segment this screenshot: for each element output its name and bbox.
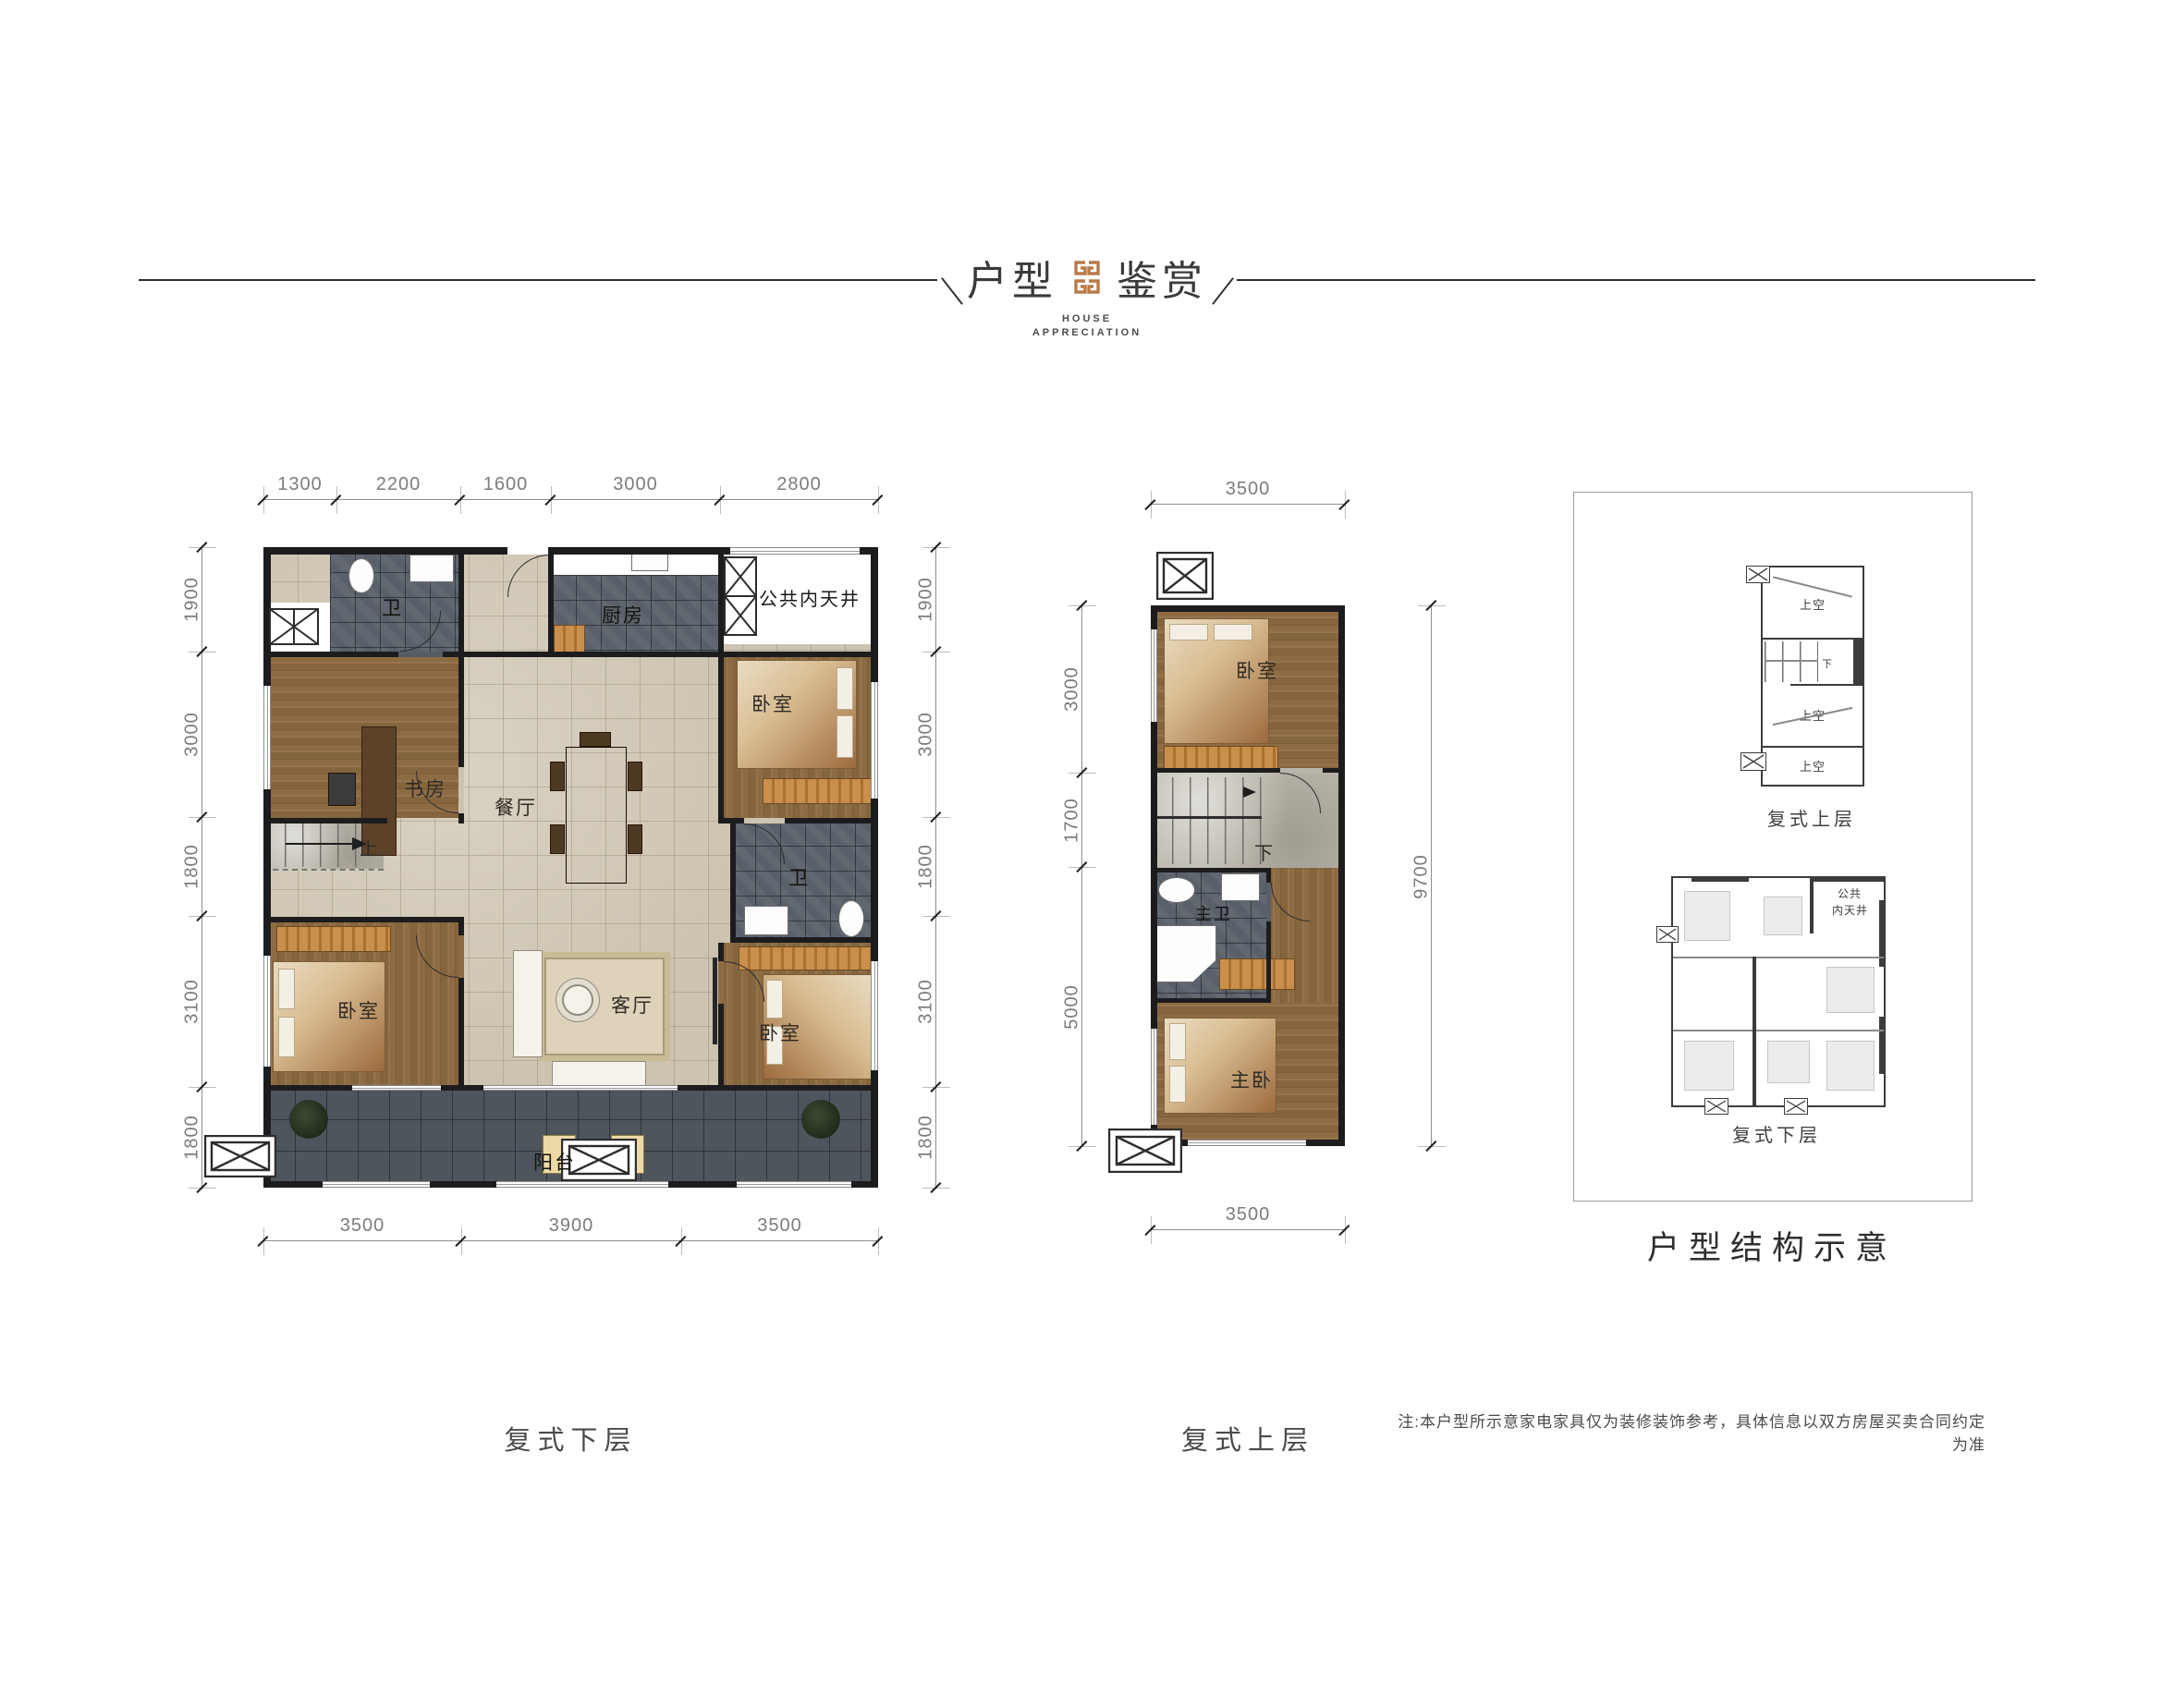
room-label: 卧室: [337, 996, 380, 1024]
dim-value: 1900: [182, 556, 203, 643]
pillow: [278, 1017, 295, 1057]
dim-value: 3000: [551, 474, 720, 495]
dim-value: 1800: [916, 823, 937, 910]
room-label: 主卫: [1195, 901, 1232, 925]
wall: [1814, 877, 1884, 882]
wall: [1853, 638, 1863, 686]
room-label: 餐厅: [495, 793, 537, 821]
page-title-right: 鉴赏: [1117, 248, 1207, 307]
shaft-hatch-icon: [724, 556, 757, 636]
window: [483, 1085, 678, 1091]
ac-unit-icon: [269, 608, 319, 645]
brand-logo-icon: [1072, 259, 1102, 296]
wall: [1810, 878, 1814, 933]
furniture-hint: [1767, 1041, 1810, 1083]
stair-rail: [1154, 816, 1262, 819]
courtyard-label-line1: 公共: [1838, 885, 1862, 901]
pillow: [1169, 1023, 1186, 1060]
plant: [289, 1100, 328, 1139]
wardrobe: [739, 946, 873, 970]
page-title: 户型 鉴赏: [810, 250, 1364, 305]
ac-unit-icon: [204, 1135, 276, 1177]
ac-unit-icon: [1784, 1098, 1808, 1115]
window: [352, 1085, 441, 1091]
chair: [628, 824, 642, 854]
kitchen-cabinet: [554, 625, 585, 653]
wall: [1673, 1030, 1884, 1031]
dim-value: 3500: [1151, 1204, 1345, 1226]
wall: [1879, 1017, 1884, 1074]
wall: [1753, 957, 1756, 1031]
window: [730, 547, 860, 555]
lower-plan-caption: 复式下层: [263, 1419, 878, 1458]
wall: [730, 937, 878, 943]
lower-dim-top: 1300 2200 1600 3000 2800: [263, 499, 878, 500]
stair-arrow-head: [1243, 787, 1256, 798]
room-label: 卫: [788, 863, 810, 891]
room-label: 客厅: [611, 991, 653, 1019]
wall: [1763, 746, 1863, 748]
window: [263, 686, 271, 789]
room-label: 下: [1254, 838, 1275, 865]
room-label: 公共内天井: [759, 584, 861, 611]
dim-value: 3500: [681, 1215, 878, 1237]
door-gap: [458, 767, 464, 813]
structure-lower-diagram: 公共 内天井: [1671, 876, 1886, 1107]
opening-line: [1773, 576, 1852, 597]
wall: [1151, 605, 1345, 612]
dim-value: 1800: [916, 1094, 937, 1181]
dim-value: 2800: [720, 474, 878, 495]
window: [737, 1181, 851, 1188]
dim-value: 3500: [263, 1215, 461, 1237]
sink: [744, 906, 788, 935]
furniture-hint: [1684, 891, 1730, 941]
wall: [1673, 957, 1884, 958]
ac-unit-icon: [1704, 1098, 1728, 1115]
window: [871, 961, 878, 1070]
sink: [409, 555, 454, 582]
room-label: 书房: [404, 775, 446, 802]
cabinet: [1219, 958, 1295, 990]
ac-unit-icon: [1746, 566, 1770, 583]
structure-upper-caption: 复式上层: [1742, 804, 1881, 831]
wall: [871, 547, 878, 1188]
wardrobe: [276, 926, 391, 952]
ac-unit-icon: [1156, 552, 1214, 600]
door-gap: [458, 935, 464, 978]
stairs-label: 下: [1822, 656, 1833, 671]
dim-value: 3000: [182, 691, 203, 778]
structure-panel-title: 户型结构示意: [1573, 1222, 1971, 1269]
toilet: [1158, 877, 1195, 903]
courtyard-label-line2: 内天井: [1832, 902, 1868, 918]
room-label: 上: [360, 834, 380, 860]
furniture-hint: [1764, 897, 1802, 935]
room-label: 卧室: [751, 689, 794, 717]
toilet: [838, 900, 864, 937]
pillow: [837, 667, 853, 710]
dim-value: 3900: [461, 1215, 681, 1237]
window: [1151, 629, 1157, 722]
dim-value: 3100: [916, 958, 937, 1045]
ac-unit-icon: [1656, 926, 1679, 943]
room-label: 阳台: [533, 1148, 576, 1176]
room-label: 卧室: [759, 1019, 801, 1046]
room-label: 主卧: [1230, 1066, 1273, 1093]
structure-upper-diagram: 下 上空 上空 上空: [1761, 566, 1864, 787]
room-label: 厨房: [602, 601, 644, 628]
wall: [730, 821, 736, 941]
dining-table: [566, 747, 627, 884]
window: [1151, 1029, 1157, 1125]
wall: [263, 652, 878, 657]
door-gap: [507, 547, 550, 555]
ac-unit-icon: [1108, 1128, 1182, 1173]
pillow: [278, 969, 295, 1009]
wall: [1692, 877, 1749, 882]
room-label: 卧室: [1236, 656, 1278, 684]
dim-value: 1800: [182, 1094, 203, 1181]
dim-value: 3000: [916, 691, 937, 778]
stair-rail: [1765, 660, 1818, 662]
wall: [1338, 605, 1345, 1146]
kitchen-sink: [631, 552, 668, 571]
page-subtitle: HOUSE APPRECIATION: [810, 312, 1364, 340]
dim-value: 2200: [336, 474, 460, 495]
door-gap: [1266, 883, 1271, 921]
door-gap: [744, 818, 785, 823]
tv-console: [713, 958, 717, 1044]
chair: [550, 762, 565, 791]
stair-arrow: [286, 843, 360, 845]
coffee-table: [556, 978, 600, 1022]
upper-dim-top: 3500: [1151, 504, 1345, 505]
sofa: [513, 950, 543, 1057]
dim-value: 3100: [182, 958, 203, 1045]
upper-plan-caption: 复式上层: [1058, 1419, 1437, 1458]
void-label: 上空: [1763, 595, 1863, 613]
lower-dim-left: 1900 3000 1800 3100 1800: [202, 547, 202, 1188]
furniture-hint: [1826, 967, 1875, 1013]
sink: [1221, 873, 1260, 901]
chair: [580, 732, 611, 747]
dim-value: 1800: [182, 823, 203, 910]
room-label: 卫: [382, 593, 403, 621]
upper-dim-left: 3000 1700 5000: [1081, 605, 1082, 1146]
stair-treads: [1765, 641, 1818, 682]
structure-lower-caption: 复式下层: [1707, 1120, 1846, 1147]
pillow: [1169, 1066, 1186, 1103]
dim-value: 9700: [1411, 834, 1433, 921]
stair-break-line: [263, 869, 384, 871]
dim-value: 3500: [1151, 479, 1345, 500]
upper-floor-plan: 卧室 下 主卫 主卧: [1151, 605, 1345, 1146]
dim-value: 1900: [916, 556, 937, 643]
dim-value: 3000: [1062, 646, 1083, 733]
furniture-hint: [1684, 1041, 1734, 1091]
dim-value: 1700: [1062, 777, 1083, 864]
dim-value: 5000: [1062, 964, 1083, 1051]
stair-treads: [267, 823, 360, 867]
plant: [801, 1100, 840, 1139]
chair: [550, 824, 565, 854]
lower-dim-right: 1900 3000 1800 3100 1800: [935, 547, 936, 1188]
disclaimer-note: 注:本户型所示意家电家具仅为装修装饰参考，具体信息以双方房屋买卖合同约定为准: [1386, 1409, 1985, 1455]
page-subtitle-line1: HOUSE: [810, 312, 1364, 326]
window: [323, 1181, 430, 1188]
wall: [718, 818, 878, 823]
upper-dim-right: 9700: [1431, 605, 1432, 1146]
wall: [1151, 998, 1271, 1003]
wall: [1753, 1030, 1756, 1105]
chair: [628, 762, 642, 791]
dim-value: 1300: [263, 474, 336, 495]
lower-floor-plan: 卫 厨房 公共内天井 书房 餐厅 卧室 上 卫 卧室 客厅 卧室 阳台: [263, 547, 878, 1188]
pillow: [766, 980, 783, 1019]
toilet: [348, 558, 374, 593]
upper-dim-bottom: 3500: [1151, 1229, 1345, 1230]
wall: [263, 917, 460, 922]
furniture-hint: [1826, 1041, 1875, 1091]
lower-dim-bottom: 3500 3900 3500: [263, 1240, 878, 1241]
page-subtitle-line2: APPRECIATION: [810, 326, 1364, 340]
pillow: [1214, 624, 1252, 640]
wall: [1763, 638, 1863, 640]
void-label: 上空: [1763, 757, 1863, 775]
pillow: [837, 715, 853, 758]
pillow: [1169, 624, 1208, 640]
wardrobe: [763, 778, 873, 804]
wall: [718, 547, 724, 823]
wall: [1151, 868, 1271, 872]
window: [1188, 1140, 1306, 1146]
window: [871, 682, 878, 799]
window: [263, 956, 271, 1067]
door-gap: [398, 652, 443, 657]
wall: [263, 818, 387, 823]
page-title-left: 户型: [967, 248, 1057, 307]
wardrobe: [1164, 746, 1278, 770]
window: [496, 1181, 668, 1188]
dim-value: 1600: [460, 474, 551, 495]
ac-unit-icon: [1740, 752, 1766, 771]
wall: [1790, 684, 1863, 686]
door-gap: [1280, 768, 1323, 773]
desk-chair: [328, 773, 356, 806]
